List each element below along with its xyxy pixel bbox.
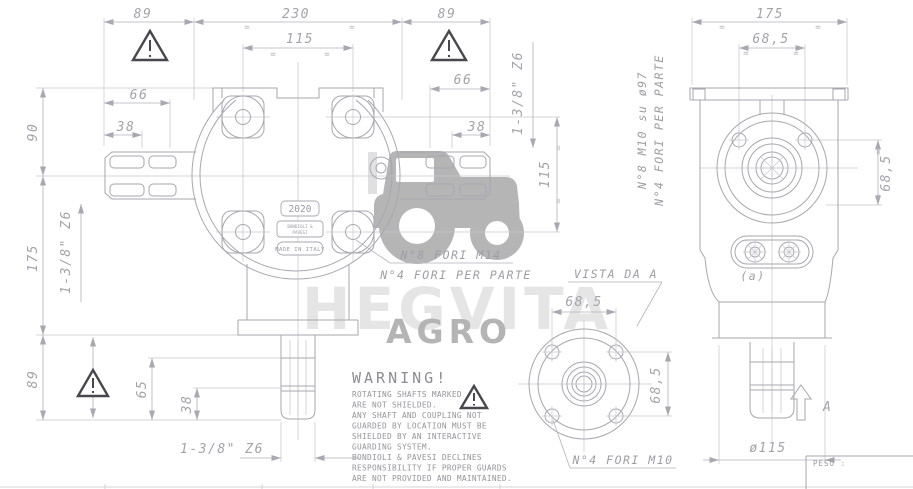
dim-175: 175 (26, 244, 41, 272)
spline-spec-right: 1-3/8" Z6 (511, 51, 526, 135)
dim-68-5-side-top: 68,5 (752, 32, 789, 47)
warning-line: ANY SHAFT AND COUPLING NOT (352, 411, 482, 420)
warning-triangle-icon (432, 31, 466, 60)
side-centerlines (692, 18, 882, 464)
technical-drawing-canvas: HEGVITA AGRO (0, 0, 913, 489)
spline-spec-left: 1-3/8" Z6 (59, 210, 74, 294)
eq-mark: = (874, 194, 884, 200)
brand-plate-line2: PAVESI (292, 230, 308, 235)
side-holes-note-2: N°4 FORI PER PARTE (652, 54, 666, 207)
eq-mark: = (244, 23, 250, 33)
warning-triangle-icon (133, 31, 167, 60)
made-in-label: MADE IN ITALY (275, 247, 325, 253)
dim-66-left: 66 (130, 88, 149, 103)
front-holes-note-1: N°8 FORI M14 (399, 248, 501, 262)
dim-38-right: 38 (467, 120, 487, 135)
eq-mark: = (270, 50, 276, 60)
vista-title: VISTA DA A (574, 267, 658, 281)
arrow-a-label: A (822, 400, 832, 415)
warning-block: WARNING! ROTATING SHAFTS MARKED ARE NOT … (352, 369, 512, 483)
dim-68-5-vista-top: 68,5 (565, 295, 602, 310)
warning-triangle-icon (78, 370, 108, 396)
eq-mark: = (349, 23, 355, 33)
eq-mark: = (719, 23, 725, 33)
vista-holes-note: N°4 FORI M10 (571, 453, 673, 467)
dim-175-side: 175 (756, 7, 784, 22)
warning-triangle-icon (461, 386, 487, 408)
watermark-sub: AGRO (386, 312, 512, 351)
warning-line: ARE NOT PROVIDED AND MAINTAINED. (352, 474, 512, 483)
dim-68-5-side-right: 68,5 (879, 154, 894, 191)
dim-68-5-vista-right: 68,5 (649, 366, 664, 403)
model-number: 2020 (289, 204, 312, 215)
warning-line: BONDIOLI & PAVESI DECLINES (352, 453, 482, 462)
dim-89-top-left: 89 (134, 7, 153, 22)
dim-89-top-right: 89 (438, 7, 457, 22)
label-a: (a) (740, 269, 765, 283)
eq-mark: = (324, 50, 330, 60)
warning-line: GUARDING SYSTEM. (352, 443, 432, 452)
dim-230: 230 (282, 7, 310, 22)
warning-line: ARE NOT SHIELDED. (352, 401, 437, 410)
eq-mark: = (554, 145, 564, 151)
dim-115-top: 115 (286, 32, 314, 47)
side-gearbox-body (690, 88, 848, 418)
front-holes-note-2: N°4 FORI PER PARTE (379, 268, 532, 282)
peso-label: PESO : (813, 459, 846, 468)
brand-plate-line1: BONDIOLI & (287, 224, 313, 229)
dim-65: 65 (135, 380, 150, 399)
dim-90: 90 (26, 123, 41, 142)
warning-title: WARNING! (352, 369, 448, 387)
warning-line: SHIELDED BY AN INTERACTIVE (352, 432, 482, 441)
dim-66-right: 66 (454, 73, 473, 88)
warning-line: ROTATING SHAFTS MARKED (352, 390, 462, 399)
eq-mark: = (793, 49, 799, 59)
dim-38-bottom: 38 (180, 395, 195, 415)
spline-spec-bottom: 1-3/8" Z6 (180, 442, 264, 457)
dim-dia-115: ø115 (749, 441, 786, 456)
dim-89-bottom: 89 (26, 370, 41, 389)
warning-line: GUARDED BY LOCATION MUST BE (352, 422, 487, 431)
side-holes-note-1: N°8 M10 su ø97 (635, 71, 649, 190)
dim-115-right: 115 (538, 160, 553, 188)
eq-mark: = (743, 49, 749, 59)
side-view: 175 68,5 68,5 ø115 N°8 M10 su ø97 N°4 FO… (635, 7, 894, 464)
eq-mark: = (874, 149, 884, 155)
warning-line: RESPONSIBILITY IF PROPER GUARDS (352, 464, 507, 473)
eq-mark: = (554, 198, 564, 204)
eq-mark: = (815, 23, 821, 33)
dim-38-left: 38 (116, 120, 136, 135)
